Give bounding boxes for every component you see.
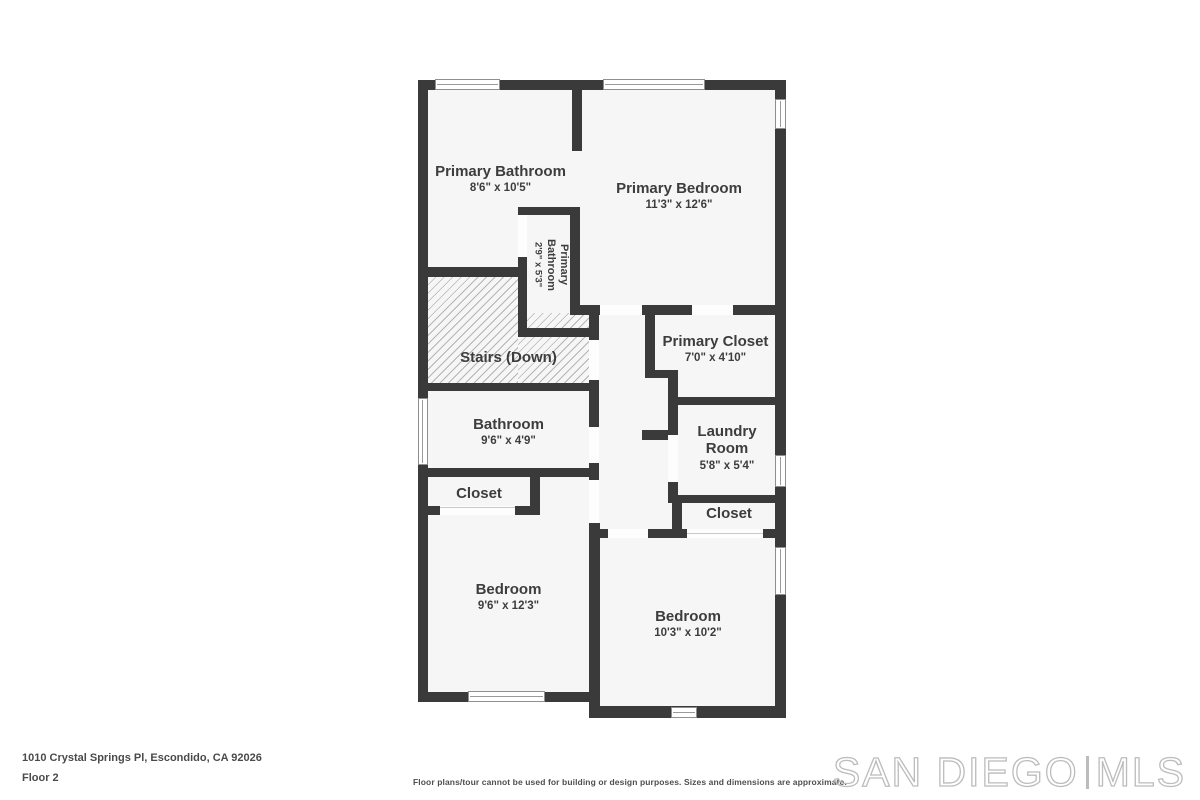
wall-segment [589,380,599,427]
wall-segment [518,207,578,215]
room-label-closet-left: Closet [428,485,530,502]
room-label-bathroom: Bathroom 9'6" x 4'9" [428,416,589,447]
wall-segment [589,305,599,340]
wall-segment [515,506,540,515]
room-name: Bedroom [428,581,589,598]
room-name: Bedroom [600,608,776,625]
room-dimensions: 9'6" x 4'9" [428,435,589,447]
logo-brand-text: SAN DIEGO [833,752,1079,793]
window [775,455,786,487]
wall-segment [418,506,440,515]
property-address: 1010 Crystal Springs Pl, Escondido, CA 9… [22,752,262,764]
room-label-laundry: Laundry Room 5'8" x 5'4" [687,423,767,472]
room-dimensions: 2'9" x 5'3" [531,217,543,312]
floor-plan: Primary Bathroom 8'6" x 10'5" Primary Be… [418,78,786,722]
window [603,79,705,90]
door-opening [589,427,599,463]
wall-segment [589,523,600,718]
wall-segment [763,529,776,538]
logo-suffix-text: MLS [1096,752,1186,793]
room-dimensions: 9'6" x 12'3" [428,600,589,612]
door-opening [589,480,599,523]
wall-segment [572,90,582,151]
stairs-hatch [428,277,518,383]
room-name: Primary Bedroom [582,180,776,197]
wall-segment [418,80,428,702]
wall-segment [655,370,678,378]
wall-segment [733,305,776,315]
room-dimensions: 8'6" x 10'5" [428,182,573,194]
door-opening [589,340,599,380]
wall-segment [518,328,597,337]
door-opening [668,435,678,482]
room-name: Bathroom [428,416,589,433]
window [671,707,697,718]
door-opening [692,305,733,315]
wall-segment [648,529,687,538]
floor-number: Floor 2 [22,772,59,784]
room-name: Stairs (Down) [428,349,589,366]
room-name: Primary Closet [655,333,776,350]
door-opening [608,529,648,538]
room-label-primary-bedroom: Primary Bedroom 11'3" x 12'6" [582,180,776,211]
wall-segment [775,80,786,718]
window [775,547,786,595]
wall-segment [418,383,598,391]
floor-plan-page: { "rooms": { "primary_bathroom": {"name"… [0,0,1200,800]
room-name: Closet [428,485,530,502]
wall-segment [590,529,608,538]
room-name: Closet [682,505,776,522]
room-dimensions: 11'3" x 12'6" [582,199,776,211]
wall-segment [418,468,598,477]
stairs-hatch-landing [527,313,589,328]
room-label-primary-closet: Primary Closet 7'0" x 4'10" [655,333,776,364]
room-label-closet-right: Closet [682,505,776,522]
room-label-primary-bathroom-small: Primary Bathroom 2'9" x 5'3" [527,217,570,312]
room-name: Primary Bathroom [428,163,573,180]
window [418,398,428,465]
room-name: Primary Bathroom [544,217,570,312]
wall-segment [418,267,527,277]
window [468,691,545,702]
wall-segment [668,495,776,503]
opening-line [440,507,515,508]
room-dimensions: 5'8" x 5'4" [687,460,767,472]
logo-divider [1086,756,1089,789]
room-label-stairs: Stairs (Down) [428,349,589,366]
window [775,99,786,129]
window [435,79,500,90]
door-opening [518,215,527,257]
wall-segment [589,463,599,480]
room-dimensions: 7'0" x 4'10" [655,352,776,364]
room-dimensions: 10'3" x 10'2" [600,627,776,639]
wall-segment [668,378,678,435]
room-label-primary-bathroom: Primary Bathroom 8'6" x 10'5" [428,163,573,194]
room-name: Laundry Room [687,423,767,458]
wall-segment [570,207,580,313]
wall-segment [678,397,776,405]
door-opening [600,305,642,315]
disclaimer-text: Floor plans/tour cannot be used for buil… [413,777,847,787]
room-label-bedroom-right: Bedroom 10'3" x 10'2" [600,608,776,639]
opening-line [687,533,763,534]
room-label-bedroom-left: Bedroom 9'6" x 12'3" [428,581,589,612]
wall-segment [642,430,668,440]
sandiego-mls-logo: SAN DIEGO MLS [833,752,1186,793]
wall-segment [645,306,655,378]
